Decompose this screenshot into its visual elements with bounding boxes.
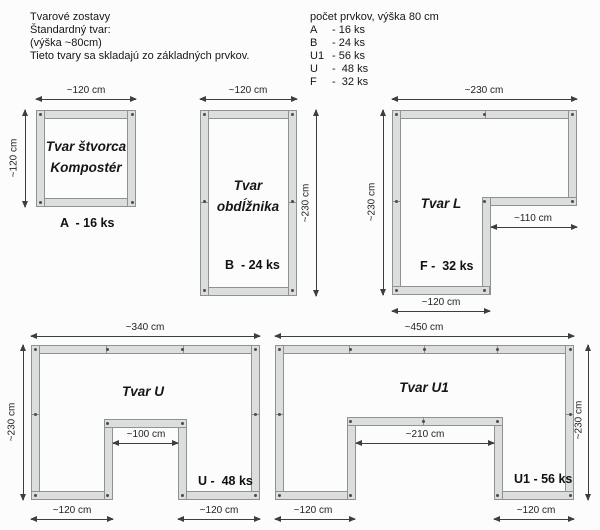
dimension-label: ~120 cm: [9, 139, 20, 178]
joint-dot: [254, 348, 257, 351]
joint-dot: [395, 200, 398, 203]
joint-dot: [569, 413, 572, 416]
wall-segment: [275, 345, 284, 500]
joint-dot: [131, 113, 134, 116]
joint-dot: [422, 420, 425, 423]
shape-name: Tvar L: [421, 193, 462, 214]
legend-item-count: - 24 ks: [332, 37, 365, 50]
dimension-line: [178, 519, 260, 520]
dimension-label: ~120 cm: [53, 505, 92, 516]
dimension-line: [23, 345, 24, 500]
wall-segment: [200, 287, 297, 296]
shape-name-line: Tvar štvorca: [46, 136, 126, 157]
shape-name: Tvar obdĺžnika: [217, 175, 279, 217]
dimension-label: ~450 cm: [405, 322, 444, 333]
shape-name-line: Tvar: [217, 175, 279, 196]
wall-segment: [31, 491, 113, 500]
wall-segment: [31, 345, 260, 354]
joint-dot: [39, 113, 42, 116]
shape-name: Tvar U1: [399, 377, 449, 398]
dimension-line: [31, 519, 113, 520]
dimension-label: ~230 cm: [574, 401, 585, 440]
dimension-line: [200, 99, 297, 100]
joint-dot: [571, 113, 574, 116]
joint-dot: [39, 201, 42, 204]
wall-segment: [568, 110, 577, 206]
joint-dot: [131, 201, 134, 204]
compost-shapes-diagram: Tvarové zostavy Štandardný tvar: (výška …: [0, 0, 600, 530]
dimension-line: [316, 110, 317, 296]
dimension-line: [588, 345, 589, 500]
dimension-label: ~230 cm: [465, 85, 504, 96]
joint-dot: [483, 200, 486, 203]
dimension-label: ~120 cm: [200, 505, 239, 516]
legend-item-code: B: [310, 37, 332, 50]
joint-dot: [483, 113, 486, 116]
legend-row: B - 24 ks: [310, 37, 439, 50]
joint-dot: [349, 494, 352, 497]
legend-item-code: U: [310, 63, 332, 76]
wall-segment: [275, 491, 355, 500]
header-line: Tieto tvary sa skladajú zo základných pr…: [30, 50, 249, 63]
dimension-label: ~120 cm: [422, 297, 461, 308]
dimension-line: [383, 110, 384, 295]
dimension-line: [275, 519, 355, 520]
joint-dot: [291, 289, 294, 292]
legend-title: počet prvkov, výška 80 cm: [310, 11, 439, 24]
dimension-label: ~120 cm: [294, 505, 333, 516]
wall-segment: [494, 417, 503, 500]
legend-item-count: - 16 ks: [332, 24, 365, 37]
wall-segment: [178, 419, 187, 500]
header-text: Tvarové zostavy Štandardný tvar: (výška …: [30, 11, 249, 63]
legend-item-code: A: [310, 24, 332, 37]
legend-row: U - 48 ks: [310, 63, 439, 76]
dimension-line: [494, 519, 574, 520]
shape-name-line: obdĺžnika: [217, 196, 279, 217]
joint-dot: [496, 348, 499, 351]
wall-segment: [36, 110, 45, 207]
dimension-line: [36, 99, 136, 100]
joint-dot: [349, 420, 352, 423]
dimension-label: ~230 cm: [7, 403, 18, 442]
shape-name: Tvar U: [122, 381, 164, 402]
dimension-label: ~120 cm: [229, 85, 268, 96]
wall-segment: [36, 198, 136, 207]
dimension-label: ~340 cm: [126, 322, 165, 333]
wall-segment: [127, 110, 136, 207]
dimension-label: ~120 cm: [67, 85, 106, 96]
header-line: Štandardný tvar:: [30, 24, 249, 37]
dimension-line: [31, 336, 260, 337]
dimension-line: [491, 227, 577, 228]
joint-dot: [203, 200, 206, 203]
count-label: A - 16 ks: [60, 216, 114, 230]
joint-dot: [496, 494, 499, 497]
legend-item-code: U1: [310, 50, 332, 63]
joint-dot: [106, 494, 109, 497]
wall-segment: [104, 419, 113, 500]
joint-dot: [278, 413, 281, 416]
count-label: F - 32 ks: [420, 259, 474, 273]
wall-segment: [200, 110, 297, 119]
legend-item-code: F: [310, 76, 332, 89]
joint-dot: [106, 422, 109, 425]
wall-segment: [36, 110, 136, 119]
shape-name-line: Kompostér: [46, 157, 126, 178]
header-line: Tvarové zostavy: [30, 11, 249, 24]
wall-segment: [178, 491, 260, 500]
joint-dot: [278, 494, 281, 497]
wall-segment: [347, 417, 356, 500]
dimension-line: [25, 110, 26, 207]
dimension-label: ~230 cm: [367, 183, 378, 222]
joint-dot: [106, 348, 109, 351]
dimension-line: [275, 336, 574, 337]
header-line: (výška ~80cm): [30, 37, 249, 50]
dimension-label: ~120 cm: [517, 505, 556, 516]
legend-row: U1 - 56 ks: [310, 50, 439, 63]
parts-legend: počet prvkov, výška 80 cm A - 16 ks B - …: [310, 11, 439, 89]
joint-dot: [496, 420, 499, 423]
wall-segment: [31, 345, 40, 500]
wall-segment: [392, 286, 490, 295]
joint-dot: [203, 113, 206, 116]
joint-dot: [569, 494, 572, 497]
dimension-line: [113, 443, 178, 444]
dimension-line: [392, 311, 490, 312]
joint-dot: [181, 422, 184, 425]
dimension-label: ~100 cm: [127, 429, 166, 440]
legend-item-count: - 48 ks: [332, 63, 368, 76]
joint-dot: [203, 289, 206, 292]
wall-segment: [482, 197, 491, 295]
joint-dot: [291, 200, 294, 203]
dimension-label: ~230 cm: [301, 184, 312, 223]
count-label: U1 - 56 ks: [514, 472, 572, 486]
wall-segment: [200, 110, 209, 296]
legend-item-count: - 32 ks: [332, 76, 368, 89]
joint-dot: [278, 348, 281, 351]
joint-dot: [34, 494, 37, 497]
joint-dot: [423, 348, 426, 351]
joint-dot: [181, 494, 184, 497]
joint-dot: [569, 348, 572, 351]
joint-dot: [291, 113, 294, 116]
wall-segment: [494, 491, 574, 500]
joint-dot: [571, 200, 574, 203]
dimension-line: [356, 443, 494, 444]
joint-dot: [34, 348, 37, 351]
dimension-label: ~210 cm: [406, 429, 445, 440]
legend-item-count: - 56 ks: [332, 50, 365, 63]
legend-row: F - 32 ks: [310, 76, 439, 89]
wall-segment: [288, 110, 297, 296]
wall-segment: [347, 417, 503, 426]
shape-name: Tvar štvorca Kompostér: [46, 136, 126, 178]
joint-dot: [395, 289, 398, 292]
joint-dot: [254, 494, 257, 497]
count-label: U - 48 ks: [198, 474, 253, 488]
wall-segment: [104, 419, 187, 428]
wall-segment: [482, 197, 577, 206]
dimension-line: [392, 99, 577, 100]
joint-dot: [254, 413, 257, 416]
joint-dot: [181, 348, 184, 351]
legend-row: A - 16 ks: [310, 24, 439, 37]
dimension-label: ~110 cm: [514, 213, 552, 224]
count-label: B - 24 ks: [225, 258, 280, 272]
joint-dot: [34, 413, 37, 416]
joint-dot: [395, 113, 398, 116]
joint-dot: [483, 289, 486, 292]
joint-dot: [349, 348, 352, 351]
